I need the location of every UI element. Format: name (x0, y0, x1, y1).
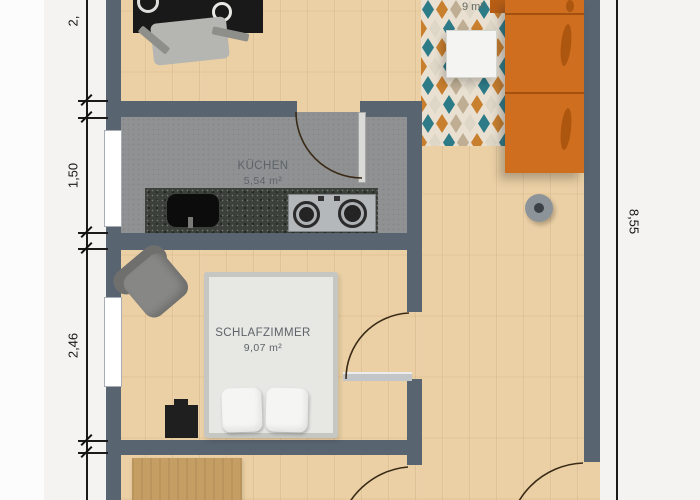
pillow-right (265, 387, 308, 432)
dimension-top-partial: 2, (66, 0, 81, 27)
bedroom-door-panel (343, 372, 412, 381)
dimension-total-height: 8,55 (627, 202, 642, 242)
wall-left-outer (106, 0, 121, 500)
floor-plan: KÜCHEN 5,54 m² SCHLAFZIMMER 9,07 m² 9 m²… (0, 0, 700, 500)
floor-lamp-center (534, 203, 544, 213)
sofa-seam-2 (505, 92, 584, 94)
living-area-label-partial: 9 m² (462, 1, 484, 13)
dimension-line-left (86, 0, 88, 500)
pillow-left (221, 387, 263, 432)
kitchen-sink (167, 194, 219, 227)
sofa-cushion-shading-3 (566, 0, 574, 12)
wall-bedroom-right-lower (407, 379, 422, 465)
kitchen-label: KÜCHEN 5,54 m² (203, 160, 323, 187)
kitchen-name: KÜCHEN (203, 160, 323, 172)
dining-table (132, 458, 242, 500)
bedroom-name: SCHLAFZIMMER (193, 327, 333, 339)
bedroom-window (104, 297, 122, 387)
dimension-kitchen-height: 1,50 (66, 156, 81, 196)
dimension-bedroom-height: 2,46 (66, 326, 81, 366)
wall-study-bottom (106, 101, 297, 117)
burner-left (293, 201, 320, 228)
dimension-line-right (616, 0, 618, 500)
wall-bedroom-bottom (106, 440, 407, 455)
coffee-table (446, 30, 497, 78)
bedroom-area: 9,07 m² (193, 342, 333, 354)
background-left-band (0, 0, 44, 500)
kitchen-area: 5,54 m² (203, 175, 323, 187)
wall-kitchen-right (407, 101, 422, 312)
wall-right-outer (584, 0, 600, 462)
nightstand-handle (174, 399, 188, 405)
burner-right (338, 199, 367, 228)
faucet (188, 217, 193, 228)
kitchen-door-panel (358, 112, 366, 183)
sofa (505, 0, 584, 173)
nightstand (165, 405, 198, 438)
bedroom-label: SCHLAFZIMMER 9,07 m² (193, 327, 333, 354)
kitchen-window (104, 130, 122, 227)
sofa-seam-1 (505, 13, 584, 15)
cooktop-knob-1 (318, 196, 324, 201)
cooktop-knob-2 (334, 196, 340, 201)
